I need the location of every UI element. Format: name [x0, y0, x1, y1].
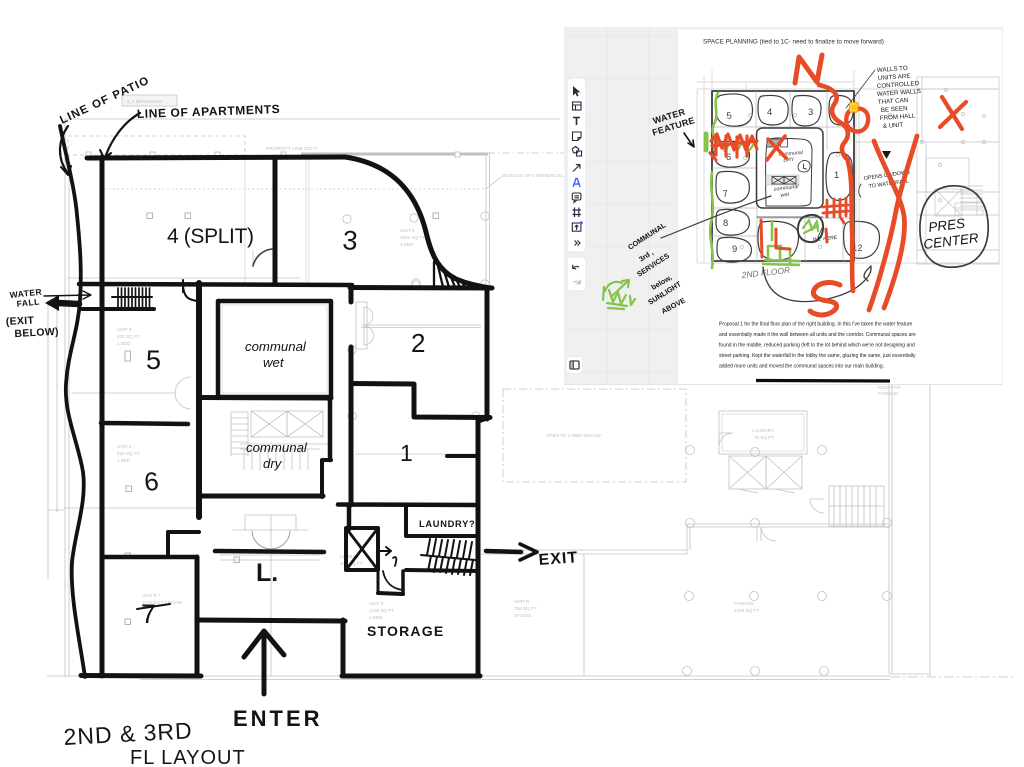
svg-text:5_1 BROADWAY: 5_1 BROADWAY [127, 99, 162, 104]
svg-text:2: 2 [411, 328, 425, 358]
svg-text:5: 5 [146, 345, 161, 375]
svg-text:LAUNDRY?: LAUNDRY? [419, 519, 475, 529]
svg-text:& UNIT: & UNIT [883, 122, 904, 130]
svg-text:OPEN TO LOBBY BELOW: OPEN TO LOBBY BELOW [546, 433, 602, 438]
svg-text:ROOFTOPPARKING: ROOFTOPPARKING [878, 385, 901, 396]
svg-text:SETBACK OF COMMERCIAL: SETBACK OF COMMERCIAL [502, 173, 564, 178]
svg-text:6: 6 [143, 466, 160, 497]
svg-text:1: 1 [400, 440, 413, 466]
svg-text:3: 3 [808, 106, 813, 117]
svg-text:4: 4 [767, 106, 772, 117]
svg-text:4 (SPLIT): 4 (SPLIT) [167, 225, 254, 248]
svg-text:STORAGE: STORAGE [367, 623, 444, 639]
svg-text:9: 9 [732, 243, 737, 254]
svg-text:7: 7 [141, 599, 156, 629]
svg-text:1: 1 [834, 169, 839, 180]
svg-text:PROPERTY LINE 120'-0": PROPERTY LINE 120'-0" [266, 146, 318, 151]
svg-text:FL LAYOUT: FL LAYOUT [130, 747, 246, 767]
svg-text:SPACE PLANNING (tied to 1C- ne: SPACE PLANNING (tied to 1C- need to fina… [703, 39, 884, 46]
svg-text:ENTER: ENTER [233, 706, 323, 731]
svg-text:EXIT: EXIT [538, 549, 579, 569]
svg-text:L.: L. [256, 559, 278, 587]
svg-text:3: 3 [342, 225, 359, 256]
svg-text:8: 8 [723, 217, 728, 228]
